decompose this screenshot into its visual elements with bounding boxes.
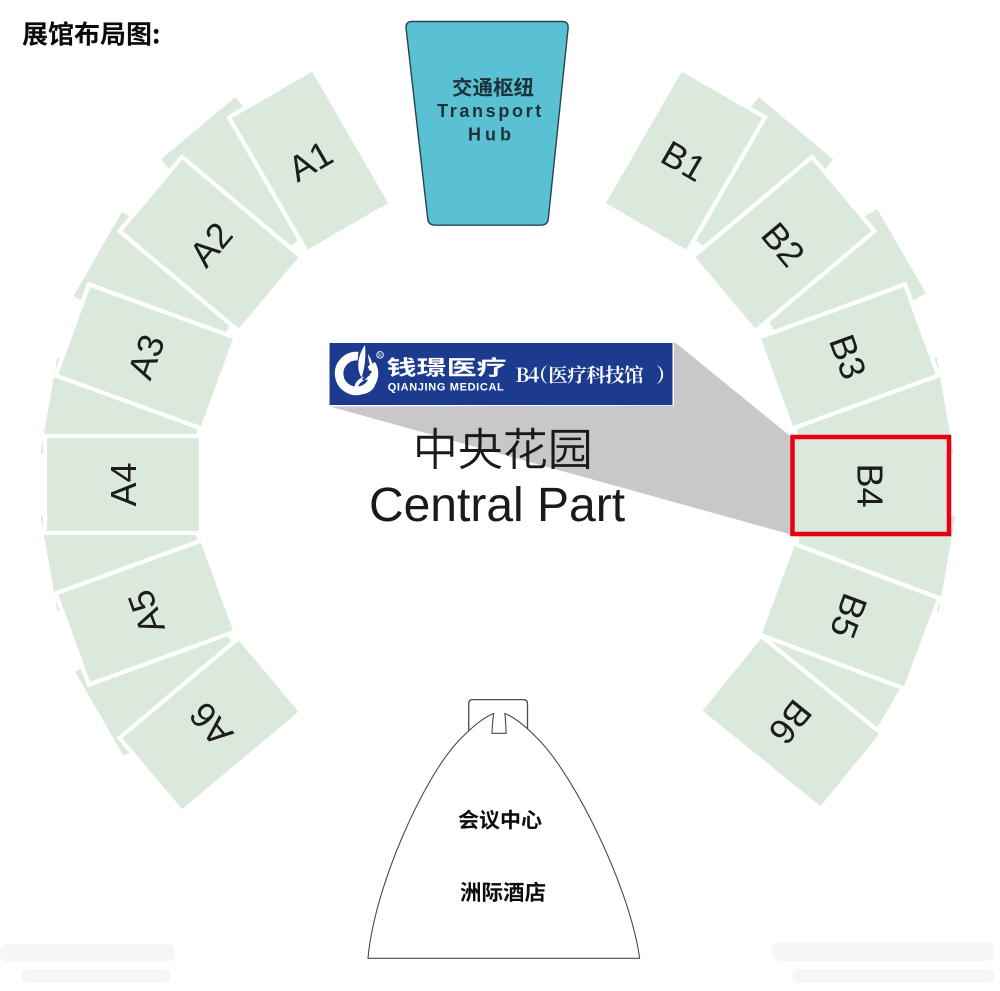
svg-text:B4: B4 [850, 463, 891, 507]
svg-text:R: R [378, 353, 382, 359]
svg-text:Central Part: Central Part [369, 479, 625, 532]
svg-text:QIANJING MEDICAL: QIANJING MEDICAL [388, 382, 505, 394]
svg-text:A4: A4 [103, 462, 144, 506]
svg-text:Transport: Transport [437, 101, 544, 121]
svg-text:Hub: Hub [468, 125, 515, 145]
